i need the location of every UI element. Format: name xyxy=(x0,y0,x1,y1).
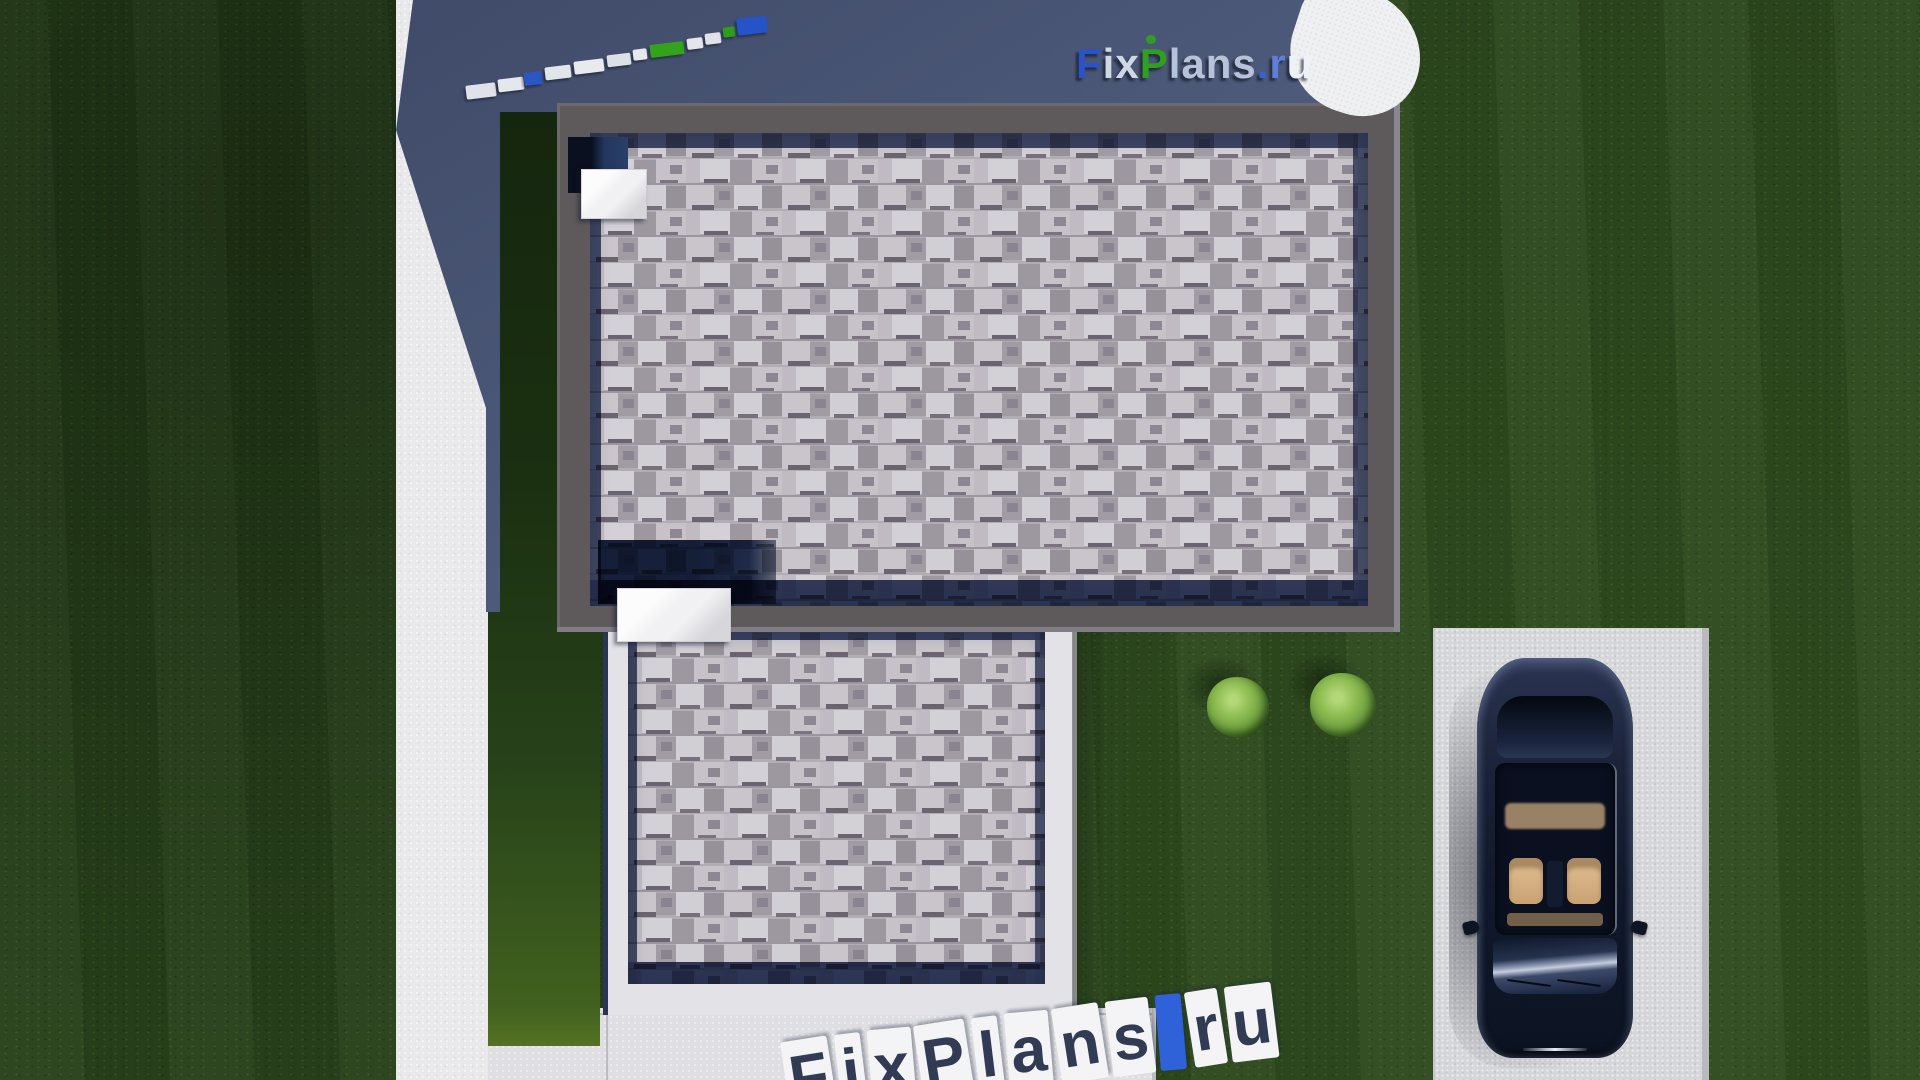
logo-accent-dot xyxy=(1146,35,1156,44)
car-wiper xyxy=(1557,979,1601,987)
car-seat-right xyxy=(1567,858,1601,904)
watermark-letter: s xyxy=(1104,997,1157,1078)
logo-letter: l xyxy=(1169,40,1182,87)
roof-lower-wing xyxy=(603,625,1077,1015)
walkway-stone xyxy=(686,37,703,50)
car-rear-window xyxy=(1497,696,1613,758)
logo-letter: r xyxy=(1269,40,1286,87)
logo-letter: s xyxy=(1232,40,1256,87)
logo-letter: a xyxy=(1181,40,1205,87)
watermark-letter: r xyxy=(1184,988,1228,1068)
walkway-stone xyxy=(523,71,542,86)
walkway-stone xyxy=(736,15,768,36)
roof-shadow-rim xyxy=(590,133,1368,606)
car-rear-seat xyxy=(1505,803,1605,829)
bush xyxy=(1207,677,1269,737)
logo-letter: i xyxy=(1103,40,1116,87)
logo-letter: P xyxy=(1140,40,1169,87)
bush xyxy=(1310,673,1376,737)
logo-letter: u xyxy=(1287,40,1314,87)
roof-shadow-rim xyxy=(628,632,1045,984)
watermark-letter: i xyxy=(834,1032,869,1080)
logo-letter: F xyxy=(1076,40,1103,87)
walkway-stone xyxy=(722,26,735,37)
car-cabin-glass xyxy=(1495,763,1617,935)
car-windshield xyxy=(1493,938,1617,994)
render-stage: FixPlans.ru FixPlans.ru xyxy=(0,0,1920,1080)
watermark-letter: . xyxy=(1155,993,1187,1071)
watermark-letter: x xyxy=(866,1027,916,1080)
walkway-stone xyxy=(632,48,647,61)
logo-letter: . xyxy=(1257,40,1270,87)
watermark-letter: n xyxy=(1050,1002,1108,1080)
logo-letter: x xyxy=(1115,40,1139,87)
car-console xyxy=(1547,861,1563,907)
car-front-chrome xyxy=(1523,1048,1587,1051)
chimney-cap xyxy=(617,588,731,642)
site-logo: FixPlans.ru xyxy=(1076,40,1313,88)
car-seat-left xyxy=(1509,858,1543,904)
car-wiper xyxy=(1507,979,1551,987)
watermark-letter: P xyxy=(913,1018,975,1080)
watermark-letter: l xyxy=(971,1015,1006,1080)
logo-letter: n xyxy=(1206,40,1233,87)
watermark-letter: F xyxy=(780,1035,838,1080)
wall-shade xyxy=(1072,632,1106,1015)
watermark-letter: u xyxy=(1224,982,1280,1063)
walkway-stone xyxy=(704,32,721,45)
car xyxy=(1477,658,1633,1058)
watermark-letter: a xyxy=(1003,1010,1053,1080)
car-dashboard xyxy=(1507,913,1603,926)
chimney-cap xyxy=(581,169,647,219)
